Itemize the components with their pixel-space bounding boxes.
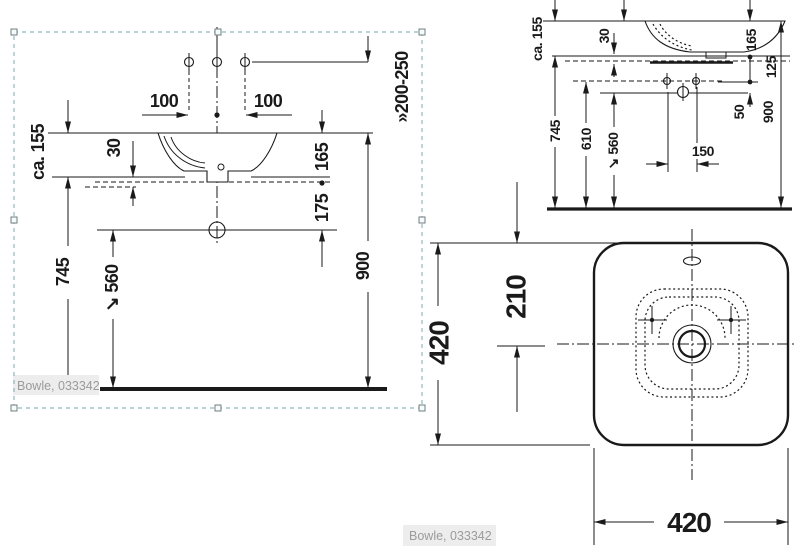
front-dim-100-left: 100 <box>150 91 179 111</box>
side-dim-30: 30 <box>596 28 612 43</box>
selection-handle-top-right[interactable] <box>419 29 425 35</box>
front-dim-30: 30 <box>104 138 124 157</box>
selection-handle-bottom-middle[interactable] <box>215 405 221 411</box>
side-dim-50: 50 <box>731 104 747 119</box>
front-product-label: Bowle, 033342 <box>17 379 100 393</box>
front-dim-745: 745 <box>53 257 73 286</box>
front-dim-900: 900 <box>353 251 373 280</box>
selection-handle-bottom-right[interactable] <box>419 405 425 411</box>
plan-product-label: Bowle, 033342 <box>409 529 492 543</box>
side-dim-150: 150 <box>692 143 715 159</box>
plan-view: 420 210 420 Bowle, 033342 <box>403 182 797 546</box>
front-dim-100-right: 100 <box>254 91 283 111</box>
front-dim-175: 175 <box>312 193 332 222</box>
front-dim-165: 165 <box>312 142 332 171</box>
front-dim-560: ↘ 560 <box>102 264 122 312</box>
selection-handle-middle-left[interactable] <box>11 217 17 223</box>
side-dim-125: 125 <box>763 55 779 78</box>
basin-front-outline <box>158 133 277 182</box>
plan-dim-210: 210 <box>501 275 532 319</box>
side-dim-610: 610 <box>578 127 594 150</box>
selection-handle-middle-right[interactable] <box>419 217 425 223</box>
side-dim-560: ↘ 560 <box>605 132 621 170</box>
cad-drawing-stage: 100 100 »200-250 ca. 155 30 165 175 745 … <box>0 0 800 548</box>
selection-box[interactable] <box>14 32 422 408</box>
front-dim-200-250: »200-250 <box>392 51 412 123</box>
selection-handle-top-left[interactable] <box>11 29 17 35</box>
side-dim-900: 900 <box>760 100 776 123</box>
side-dim-ca155: ca. 155 <box>529 16 545 61</box>
selection-overlay[interactable]: Bowle, 033342 <box>11 29 425 411</box>
basin-side-outline <box>645 21 785 52</box>
technical-drawing-canvas: 100 100 »200-250 ca. 155 30 165 175 745 … <box>0 0 800 548</box>
side-dim-745: 745 <box>547 119 563 142</box>
side-dim-165: 165 <box>743 28 759 51</box>
selection-handle-top-middle[interactable] <box>215 29 221 35</box>
plan-dim-420-left: 420 <box>424 321 455 365</box>
plan-dim-420-bottom: 420 <box>667 507 711 538</box>
front-dim-ca155: ca. 155 <box>28 123 48 179</box>
selection-handle-bottom-left[interactable] <box>11 405 17 411</box>
side-view: ca. 155 30 165 125 50 745 610 ↘ 560 150 … <box>529 0 792 209</box>
front-view[interactable]: 100 100 »200-250 ca. 155 30 165 175 745 … <box>28 27 412 389</box>
